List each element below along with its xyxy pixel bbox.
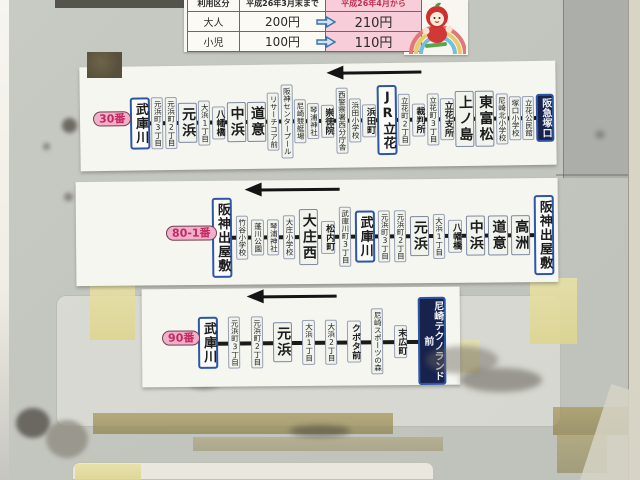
route-board-90: 90番 武庫川元浜町3丁目元浜町2丁目元浜大浜1丁目大浜2丁目クボタ前尼崎スポー… — [142, 287, 461, 388]
bus-stop: 大庄西 — [298, 209, 318, 265]
wall-stain — [290, 425, 350, 437]
stop-list: 阪神出屋敷竹谷小学校蓬川公園琴浦神社大庄小学校大庄西松内町武庫川町3丁目武庫川元… — [212, 188, 555, 285]
bus-stop: 道意 — [488, 215, 507, 255]
tape-remnant — [530, 278, 577, 344]
bus-stop: 塚口小学校 — [509, 96, 522, 140]
bus-stop: 中浜 — [466, 216, 485, 256]
route-number-badge: 30番 — [93, 111, 132, 127]
bus-stop: 元浜町2丁目 — [164, 97, 177, 150]
wall-stain — [64, 193, 73, 201]
fare-col-until: 平成26年3月末まで — [240, 0, 326, 12]
fare-category: 大人 — [188, 12, 240, 32]
tape-remnant — [75, 464, 141, 480]
stop-list: 武庫川元浜町3丁目元浜町2丁目元浜大浜1丁目大浜2丁目クボタ前尼崎スポーツの森末… — [198, 297, 447, 387]
route-number-badge: 90番 — [162, 330, 200, 345]
bus-stop: 大浜2丁目 — [325, 319, 337, 364]
bus-stop: 元浜 — [273, 322, 292, 362]
fare-increase-arrow-icon — [316, 15, 336, 28]
bus-stop: 崇徳院 — [320, 104, 334, 137]
bus-stop: 東富松 — [475, 91, 495, 147]
bus-stop: 大浜1丁目 — [302, 319, 314, 364]
route-board-80-1: 80-1番 阪神出屋敷竹谷小学校蓬川公園琴浦神社大庄小学校大庄西松内町武庫川町3… — [76, 178, 559, 286]
route-number-badge: 80-1番 — [166, 225, 217, 240]
bus-stop: 阪神センタープール — [280, 85, 293, 159]
bus-stop: 大浜1丁目 — [198, 100, 211, 145]
tape-remnant — [193, 437, 443, 451]
bus-stop: 元浜町3丁目 — [378, 210, 391, 263]
bus-stop: 竹谷小学校 — [236, 216, 248, 260]
bus-stop: 尼崎北小学校 — [495, 93, 508, 144]
tape-remnant — [90, 278, 135, 340]
bus-stop: 元浜町2丁目 — [251, 316, 264, 369]
bus-stop: 西警察署西分庁舎 — [335, 88, 348, 154]
bus-stop: 武庫川 — [354, 210, 374, 262]
bus-stop: 高洲 — [511, 215, 530, 255]
wall-stain — [460, 368, 542, 392]
fare-old-price: 100円 — [265, 35, 300, 49]
route-board-30: 30番 武庫川元浜町3丁目元浜町2丁目元浜大浜1丁目八幡橋中浜道意リサーチコア前… — [79, 61, 556, 172]
bus-stop: 大浜1丁目 — [432, 213, 444, 258]
fare-old-price: 200円 — [265, 15, 300, 29]
bus-stop: 武庫川 — [198, 317, 218, 369]
bus-stop: 琴浦神社 — [267, 219, 279, 255]
fare-row-adult: 大人 200円 210円 — [188, 12, 422, 32]
bus-stop: 浜田小学校 — [349, 99, 362, 143]
bus-stop: 松内町 — [321, 220, 335, 253]
fare-increase-arrow-icon — [316, 35, 336, 48]
bus-stop: 元浜町3丁目 — [151, 97, 164, 150]
stop-list: 武庫川元浜町3丁目元浜町2丁目元浜大浜1丁目八幡橋中浜道意リサーチコア前阪神セン… — [129, 71, 554, 171]
bus-stop: 末広町 — [393, 325, 407, 358]
bus-stop: 元浜 — [410, 216, 429, 256]
bus-stop: 浜田町 — [362, 104, 376, 137]
case-frame-left — [0, 0, 9, 480]
bus-stop: 元浜 — [178, 103, 198, 143]
bus-stop: 元浜町2丁目 — [394, 210, 407, 263]
bus-stop: 立花支所 — [440, 98, 454, 140]
bus-stop: 道意 — [247, 102, 267, 142]
wall-stain — [595, 130, 605, 139]
bus-stop: 蓬川公園 — [251, 219, 263, 255]
bus-stop: 中浜 — [226, 102, 246, 142]
bus-stop: JR立花 — [377, 85, 398, 155]
bus-stop: 八幡橋 — [211, 106, 225, 139]
bus-stop: 尼崎スポーツの森 — [371, 308, 384, 374]
bus-stop: 裁判所 — [412, 103, 426, 136]
bus-stop: 尼崎競艇場 — [294, 99, 307, 143]
bus-stop: リサーチコア前 — [267, 92, 280, 151]
wall-stain — [16, 408, 50, 438]
bus-stop: 立花町3丁目 — [426, 93, 439, 146]
bus-stop: 琴浦神社 — [307, 103, 320, 139]
bus-stop: 阪急塚口 — [535, 94, 554, 142]
bus-stop: 元浜町3丁目 — [228, 316, 241, 369]
bus-stop: クボタ前 — [347, 320, 361, 362]
fare-col-usage: 利用区分 — [188, 0, 240, 12]
wall-stain — [43, 143, 50, 150]
case-frame-edge — [55, 0, 188, 8]
fare-category: 小児 — [188, 32, 240, 52]
fare-row-child: 小児 100円 110円 — [188, 32, 422, 52]
mascot-illustration — [408, 1, 466, 54]
wall-stain — [62, 118, 77, 133]
fare-table: 利用区分 平成26年3月末まで 平成26年4月から 大人 200円 210円 小… — [187, 0, 422, 52]
bus-stop: 立花町2丁目 — [398, 93, 411, 146]
tape-remnant — [87, 52, 122, 78]
bus-stop: 大庄小学校 — [283, 215, 295, 259]
bus-stop-sign-photo: 利用区分 平成26年3月末まで 平成26年4月から 大人 200円 210円 小… — [0, 0, 640, 480]
bus-stop: 立花公民館 — [522, 96, 535, 140]
bus-stop: 上ノ島 — [455, 91, 475, 147]
bus-stop: 武庫川町3丁目 — [339, 207, 352, 267]
bus-stop: 阪神出屋敷 — [534, 195, 555, 275]
bus-stop: 武庫川 — [130, 97, 151, 149]
bus-stop: 八幡橋 — [448, 219, 462, 252]
wall-stain — [46, 420, 88, 458]
